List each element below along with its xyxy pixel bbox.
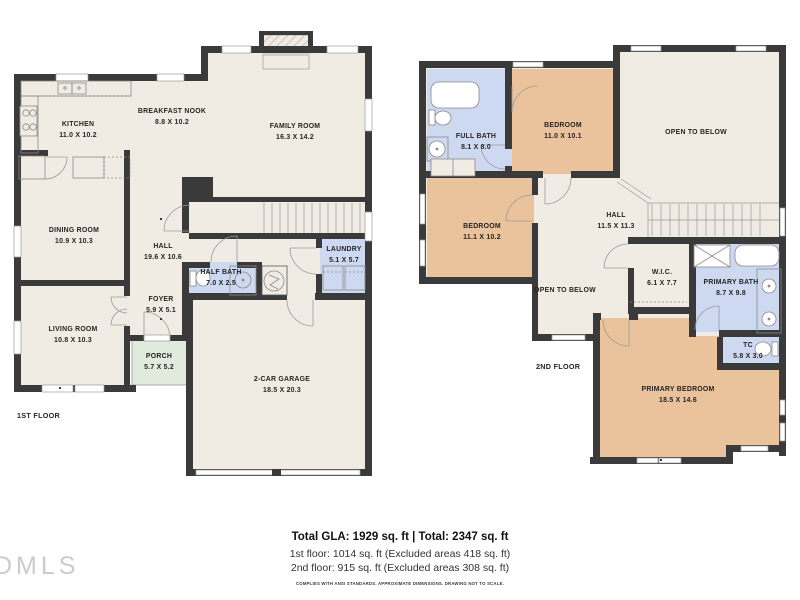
room-dims: 18.5 X 20.3 bbox=[254, 385, 310, 396]
room-name: W.I.C. bbox=[647, 267, 677, 278]
room-label-open-to-below-2: OPEN TO BELOW bbox=[534, 285, 596, 296]
first-floor-area-line: 1st floor: 1014 sq. ft (Excluded areas 4… bbox=[290, 548, 511, 560]
second-floor-fills bbox=[422, 48, 786, 464]
room-label-half-bath: HALF BATH 7.0 X 2.5 bbox=[200, 267, 241, 289]
room-name: OPEN TO BELOW bbox=[665, 127, 727, 138]
room-label-primary-bath: PRIMARY BATH 8.7 X 9.8 bbox=[704, 277, 759, 299]
room-dims: 7.0 X 2.5 bbox=[200, 278, 241, 289]
room-dims: 11.1 X 10.2 bbox=[463, 232, 501, 243]
room-label-hall-2: HALL 11.5 X 11.3 bbox=[597, 210, 634, 232]
room-name: OPEN TO BELOW bbox=[534, 285, 596, 296]
room-dims: 5.9 X 5.1 bbox=[146, 305, 176, 316]
room-dims: 5.7 X 5.2 bbox=[144, 362, 174, 373]
room-name: BREAKFAST NOOK bbox=[138, 106, 206, 117]
room-name: KITCHEN bbox=[59, 119, 97, 130]
room-dims: 11.0 X 10.1 bbox=[544, 131, 582, 142]
room-dims: 10.8 X 10.3 bbox=[48, 335, 97, 346]
room-name: 2-CAR GARAGE bbox=[254, 374, 310, 385]
room-label-primary-bedroom: PRIMARY BEDROOM 18.5 X 14.6 bbox=[641, 384, 714, 406]
room-name: HALL bbox=[144, 241, 182, 252]
room-name: BEDROOM bbox=[544, 120, 582, 131]
room-dims: 11.5 X 11.3 bbox=[597, 221, 634, 232]
room-label-breakfast-nook: BREAKFAST NOOK 8.8 X 10.2 bbox=[138, 106, 206, 128]
room-label-family-room: FAMILY ROOM 16.3 X 14.2 bbox=[270, 121, 321, 143]
ansi-disclaimer: COMPLIES WITH ANSI STANDARDS. APPROXIMAT… bbox=[296, 581, 504, 586]
room-dims: 8.1 X 8.0 bbox=[456, 142, 496, 153]
room-name: HALL bbox=[597, 210, 634, 221]
stove-icon bbox=[20, 106, 37, 136]
room-dims: 5.1 X 5.7 bbox=[326, 255, 361, 266]
room-label-hall-1: HALL 19.6 X 10.6 bbox=[144, 241, 182, 263]
first-floor-plan bbox=[14, 31, 372, 476]
second-floor-area-line: 2nd floor: 915 sq. ft (Excluded areas 30… bbox=[291, 562, 509, 574]
room-name: DINING ROOM bbox=[49, 225, 99, 236]
room-label-wic: W.I.C. 6.1 X 7.7 bbox=[647, 267, 677, 289]
bathtub-icon bbox=[735, 245, 779, 266]
mls-watermark: DMLS bbox=[0, 552, 79, 581]
room-dims: 8.8 X 10.2 bbox=[138, 117, 206, 128]
room-label-garage: 2-CAR GARAGE 18.5 X 20.3 bbox=[254, 374, 310, 396]
room-label-foyer: FOYER 5.9 X 5.1 bbox=[146, 294, 176, 316]
room-name: LIVING ROOM bbox=[48, 324, 97, 335]
room-dims: 18.5 X 14.6 bbox=[641, 395, 714, 406]
room-label-full-bath: FULL BATH 8.1 X 8.0 bbox=[456, 131, 496, 153]
room-dims: 16.3 X 14.2 bbox=[270, 132, 321, 143]
room-dims: 10.9 X 10.3 bbox=[49, 236, 99, 247]
room-name: FAMILY ROOM bbox=[270, 121, 321, 132]
water-heater-icon bbox=[262, 266, 287, 295]
room-label-bedroom-2: BEDROOM 11.0 X 10.1 bbox=[544, 120, 582, 142]
room-name: BEDROOM bbox=[463, 221, 501, 232]
floor-plan-sheet: KITCHEN 11.0 X 10.2 BREAKFAST NOOK 8.8 X… bbox=[0, 0, 800, 600]
first-floor-tag: 1ST FLOOR bbox=[17, 411, 60, 420]
total-gla-line: Total GLA: 1929 sq. ft | Total: 2347 sq.… bbox=[292, 531, 509, 543]
room-label-kitchen: KITCHEN 11.0 X 10.2 bbox=[59, 119, 97, 141]
room-dims: 5.8 X 3.0 bbox=[733, 351, 763, 362]
room-label-porch: PORCH 5.7 X 5.2 bbox=[144, 351, 174, 373]
room-name: FULL BATH bbox=[456, 131, 496, 142]
room-name: PRIMARY BATH bbox=[704, 277, 759, 288]
room-name: PRIMARY BEDROOM bbox=[641, 384, 714, 395]
room-name: LAUNDRY bbox=[326, 244, 361, 255]
room-dims: 8.7 X 9.8 bbox=[704, 288, 759, 299]
bathtub-icon bbox=[431, 82, 479, 108]
toilet-icon bbox=[190, 271, 196, 286]
room-name: PORCH bbox=[144, 351, 174, 362]
room-dims: 11.0 X 10.2 bbox=[59, 130, 97, 141]
room-label-dining-room: DINING ROOM 10.9 X 10.3 bbox=[49, 225, 99, 247]
toilet-icon bbox=[772, 342, 778, 356]
second-floor-tag: 2ND FLOOR bbox=[536, 362, 580, 371]
floor-plan-drawing bbox=[0, 0, 800, 600]
room-name: TC bbox=[733, 340, 763, 351]
room-label-laundry: LAUNDRY 5.1 X 5.7 bbox=[326, 244, 361, 266]
room-dims: 6.1 X 7.7 bbox=[647, 278, 677, 289]
room-label-tc: TC 5.8 X 3.0 bbox=[733, 340, 763, 362]
room-dims: 19.6 X 10.6 bbox=[144, 252, 182, 263]
room-label-bedroom-3: BEDROOM 11.1 X 10.2 bbox=[463, 221, 501, 243]
room-label-living-room: LIVING ROOM 10.8 X 10.3 bbox=[48, 324, 97, 346]
toilet-icon bbox=[429, 110, 435, 125]
room-label-open-to-below-1: OPEN TO BELOW bbox=[665, 127, 727, 138]
second-floor-plan bbox=[419, 45, 786, 464]
room-name: FOYER bbox=[146, 294, 176, 305]
room-name: HALF BATH bbox=[200, 267, 241, 278]
